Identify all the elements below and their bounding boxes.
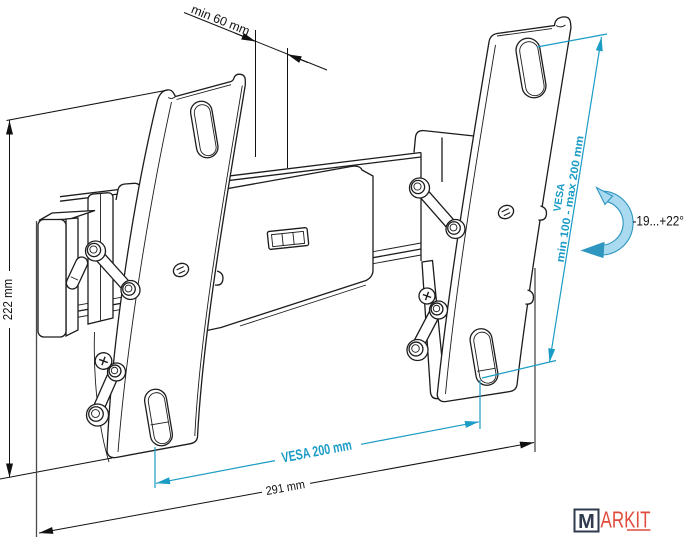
svg-text:M: M [578,511,595,533]
svg-text:ARKIT: ARKIT [601,507,651,533]
svg-text:VESA 200 mm: VESA 200 mm [280,438,353,467]
svg-text:min 60 mm: min 60 mm [189,2,252,38]
svg-text:-19...+22°: -19...+22° [633,213,685,229]
svg-text:291 mm: 291 mm [265,477,306,498]
svg-text:222 mm: 222 mm [1,279,15,321]
